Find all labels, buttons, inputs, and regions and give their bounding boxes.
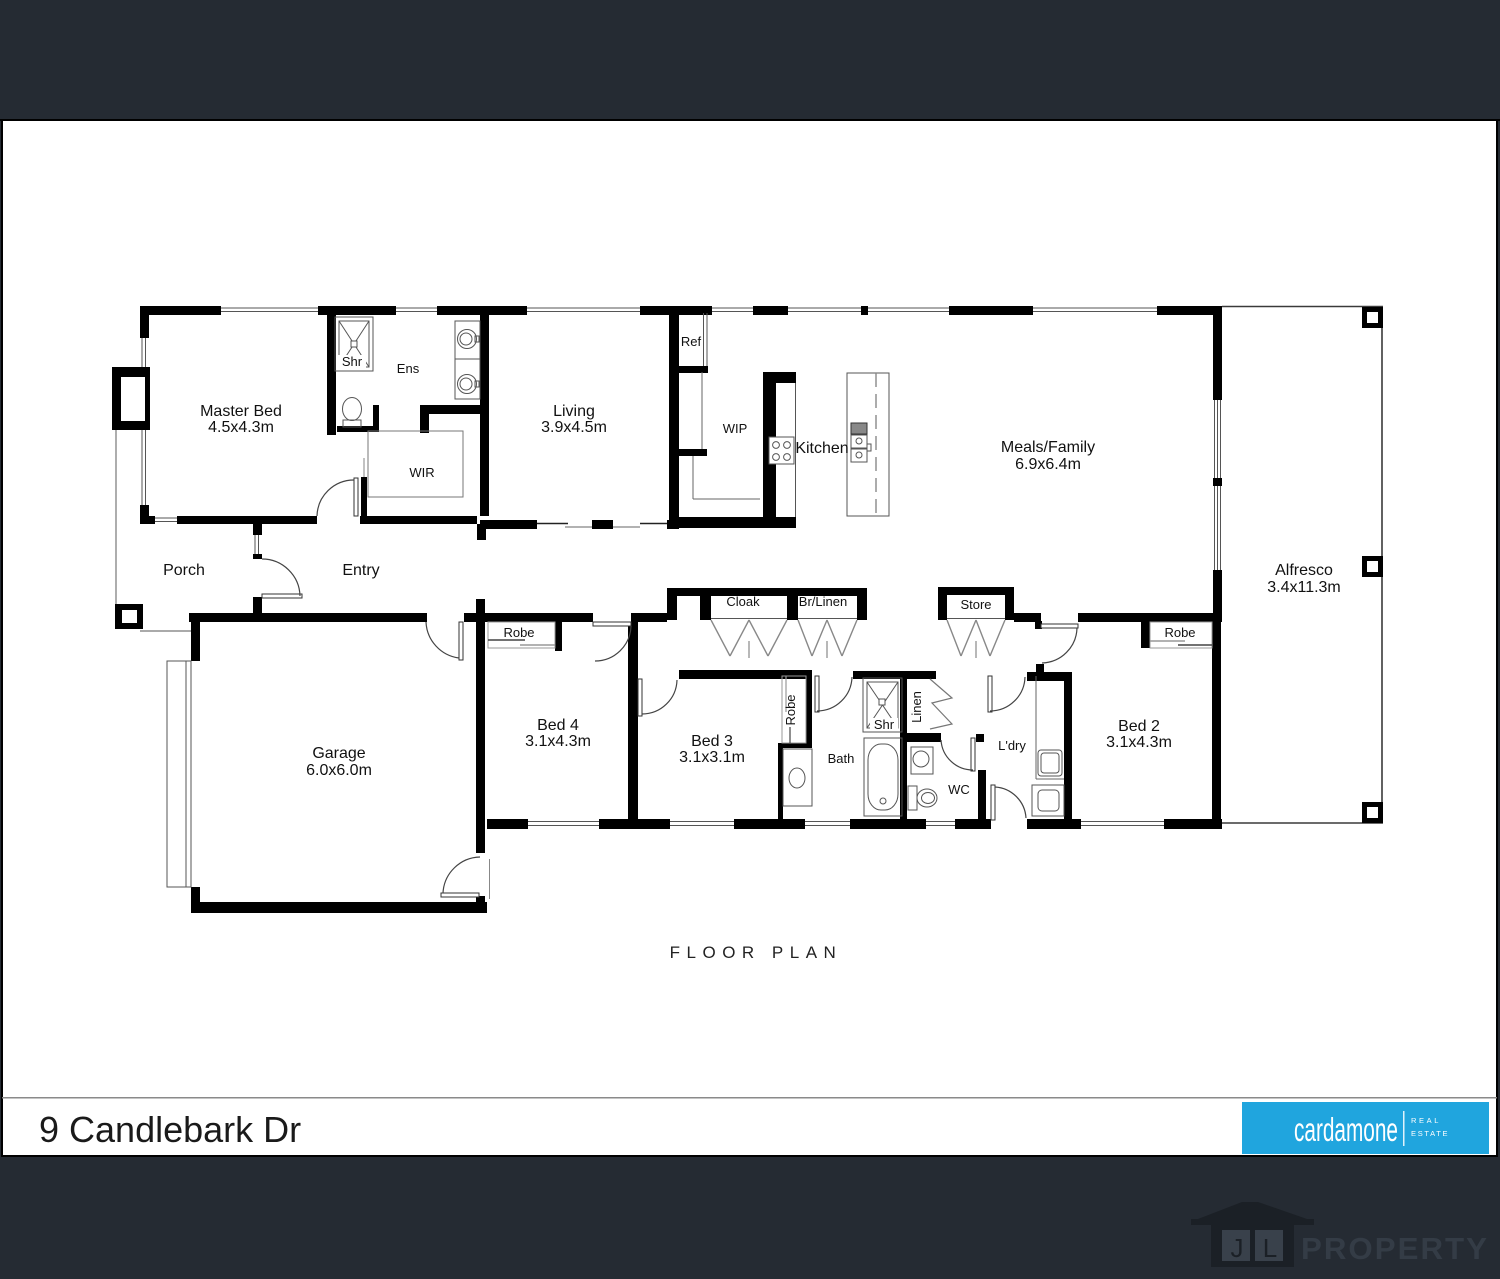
svg-text:Meals/Family: Meals/Family [1001,439,1095,456]
svg-text:FLOOR PLAN: FLOOR PLAN [670,943,843,962]
svg-text:Shr: Shr [342,354,363,369]
svg-text:Bath: Bath [828,751,855,766]
svg-text:Bed 3: Bed 3 [691,733,733,750]
svg-text:WIR: WIR [409,465,434,480]
svg-text:3.9x4.5m: 3.9x4.5m [541,419,607,436]
svg-text:Cloak: Cloak [726,594,760,609]
svg-text:Garage: Garage [312,745,365,762]
svg-text:6.9x6.4m: 6.9x6.4m [1015,456,1081,473]
svg-text:WC: WC [948,782,970,797]
svg-text:Bed 4: Bed 4 [537,717,579,734]
svg-text:REAL: REAL [1411,1116,1441,1125]
svg-text:Robe: Robe [1164,625,1195,640]
svg-text:3.1x4.3m: 3.1x4.3m [525,733,591,750]
svg-text:3.1x3.1m: 3.1x3.1m [679,749,745,766]
svg-text:3.1x4.3m: 3.1x4.3m [1106,734,1172,751]
svg-text:Store: Store [960,597,991,612]
svg-text:L: L [1263,1233,1277,1263]
svg-text:Porch: Porch [163,562,205,579]
svg-text:Robe: Robe [503,625,534,640]
svg-text:L'dry: L'dry [998,738,1026,753]
svg-text:Kitchen: Kitchen [795,440,848,457]
svg-text:Living: Living [553,403,595,420]
svg-text:Robe: Robe [783,694,798,725]
svg-text:6.0x6.0m: 6.0x6.0m [306,762,372,779]
svg-text:4.5x4.3m: 4.5x4.3m [208,419,274,436]
svg-text:Alfresco: Alfresco [1275,562,1333,579]
svg-text:Entry: Entry [342,562,379,579]
svg-text:J: J [1231,1233,1244,1263]
svg-text:Shr: Shr [874,717,895,732]
svg-text:WIP: WIP [723,421,748,436]
svg-text:Bed 2: Bed 2 [1118,718,1160,735]
svg-text:Master Bed: Master Bed [200,403,282,420]
svg-text:Ens: Ens [397,361,420,376]
svg-text:Ref: Ref [681,334,702,349]
svg-text:9 Candlebark Dr: 9 Candlebark Dr [39,1109,301,1150]
svg-text:Br/Linen: Br/Linen [799,594,847,609]
svg-text:3.4x11.3m: 3.4x11.3m [1267,579,1341,596]
svg-text:Linen: Linen [909,691,924,723]
svg-text:ESTATE: ESTATE [1411,1129,1449,1138]
svg-text:PROPERTY: PROPERTY [1301,1231,1489,1266]
svg-text:cardamone: cardamone [1294,1111,1398,1148]
